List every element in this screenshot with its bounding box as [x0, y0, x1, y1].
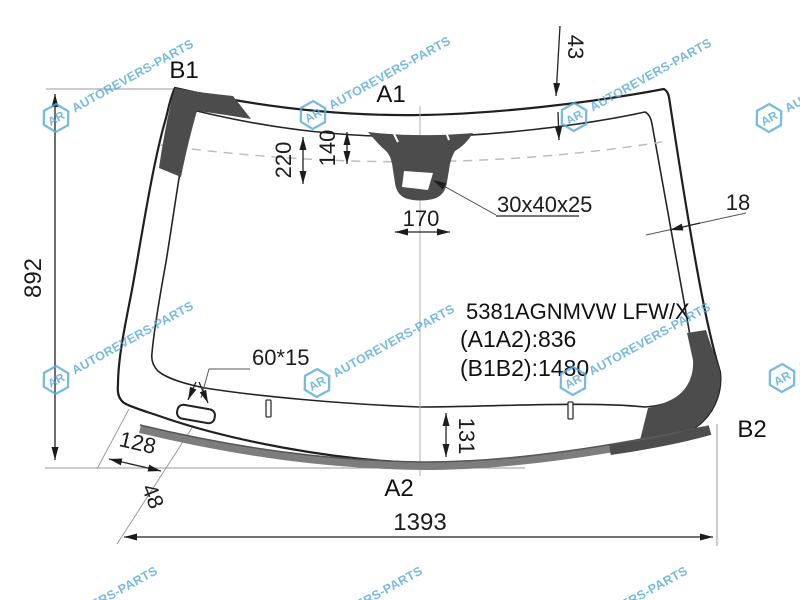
locator-peg	[568, 402, 573, 419]
watermark-brand-text: AUTOREVERS-PARTS	[795, 297, 800, 376]
ar-logo-abbr: AR	[45, 108, 67, 129]
watermark-brand-text: AUTOREVERS-PARTS	[298, 564, 425, 600]
dim-140-label: 140	[315, 130, 340, 167]
dim-131-label: 131	[454, 418, 479, 455]
dim-220-label: 220	[271, 142, 296, 179]
dimension-48: 48	[137, 480, 169, 512]
part-a1a2-distance: (A1A2):836	[460, 326, 576, 352]
watermark: ARAUTOREVERS-PARTS	[2, 559, 162, 600]
ar-logo-abbr: AR	[758, 108, 780, 129]
label-b2: B2	[737, 416, 766, 443]
dimension-892: 892	[20, 94, 55, 460]
watermark: ARAUTOREVERS-PARTS	[764, 292, 800, 396]
dimension-128: 128	[109, 426, 161, 471]
dim-height-label: 892	[20, 258, 47, 298]
ar-logo-abbr: AR	[45, 370, 67, 391]
mirror-button-cutout	[402, 171, 433, 190]
dim-170-label: 170	[403, 206, 440, 231]
dim-43-label: 43	[563, 35, 588, 59]
watermark-brand-text: AUTOREVERS-PARTS	[33, 564, 160, 600]
windshield-technical-drawing: 892 220 140 43 170 30x40x25 18 131 128 4…	[0, 0, 800, 600]
bracket-size-label: 60*15	[252, 345, 310, 370]
dim-48-label: 48	[137, 480, 169, 512]
part-number: 5381AGNMVW LFW/X	[466, 299, 690, 324]
ar-logo-abbr: AR	[771, 368, 793, 389]
dimension-1393: 1393	[124, 509, 713, 537]
watermark: ARAUTOREVERS-PARTS	[267, 559, 427, 600]
label-a2: A2	[384, 475, 413, 502]
windshield-diagram-page: 892 220 140 43 170 30x40x25 18 131 128 4…	[0, 0, 800, 600]
mirror-button-label: 30x40x25	[497, 192, 592, 217]
dim-width-label: 1393	[393, 509, 446, 536]
watermark-brand-text: AUTOREVERS-PARTS	[563, 564, 690, 600]
watermark-brand-text: AUTOREVERS-PARTS	[782, 37, 800, 116]
locator-peg	[266, 400, 271, 417]
dim-18-label: 18	[726, 190, 750, 215]
watermark: ARAUTOREVERS-PARTS	[532, 559, 692, 600]
watermark: ARAUTOREVERS-PARTS	[751, 32, 800, 136]
